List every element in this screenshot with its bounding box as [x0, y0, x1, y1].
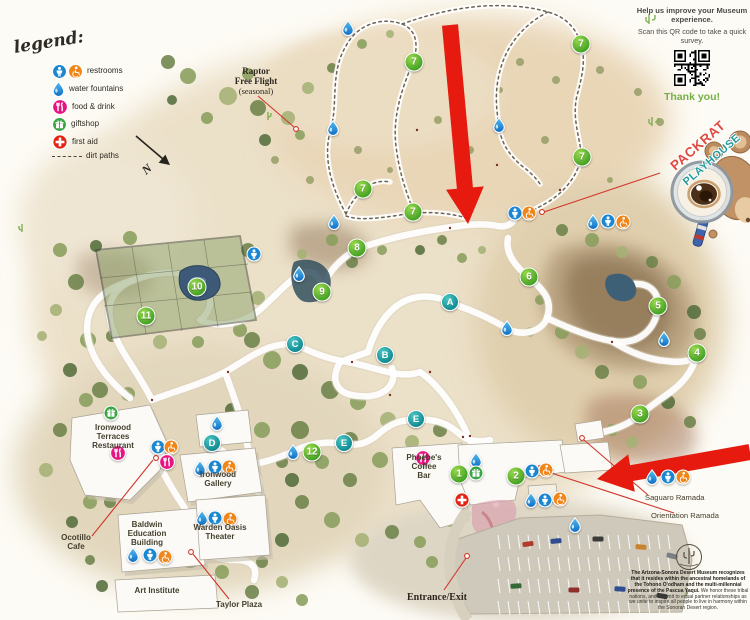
land-acknowledgment: The Arizona-Sonora Desert Museum recogni…: [627, 571, 749, 612]
water-fountain-icon: [587, 214, 600, 230]
water-fountain-icon: [525, 492, 538, 508]
giftshop-icon: [52, 117, 67, 132]
accessible-icon: [522, 206, 537, 221]
legend-item-dirt: dirt paths: [52, 152, 144, 160]
map-label-warden-oasis: Warden Oasis Theater: [193, 524, 246, 542]
marker-number-7: 7: [572, 35, 591, 54]
water-fountain-icon: [327, 120, 340, 136]
restroom-icon: [508, 206, 523, 221]
dirt-path-sample: [52, 156, 82, 157]
marker-number-4: 4: [688, 344, 707, 363]
map-label-orientation-ramada: Orientation Ramada: [651, 512, 719, 521]
map-label-raptor: Raptor Free Flight: [235, 66, 278, 86]
legend-label: water fountains: [69, 85, 123, 93]
giftshop-icon: [104, 406, 119, 421]
marker-letter-D: D: [203, 434, 221, 452]
marker-letter-E: E: [335, 434, 353, 452]
marker-number-5: 5: [649, 297, 668, 316]
water-fountain-icon: [658, 331, 671, 347]
water-fountain-icon: [493, 117, 506, 133]
water-fountain-icon: [52, 81, 65, 97]
water-fountain-icon: [328, 214, 341, 230]
accessible-icon: [616, 215, 631, 230]
water-fountain-icon: [646, 469, 659, 485]
marker-number-1: 1: [450, 465, 469, 484]
legend-item-gift: giftshop: [52, 117, 144, 132]
accessible-icon: [164, 440, 179, 455]
marker-number-7: 7: [354, 180, 373, 199]
water-fountain-icon: [501, 320, 514, 336]
marker-letter-E: E: [407, 410, 425, 428]
museum-map: N: [0, 0, 750, 620]
water-fountain-icon: [293, 266, 306, 282]
map-label-saguaro-ramada: Saguaro Ramada: [645, 494, 705, 503]
marker-number-11: 11: [137, 307, 156, 326]
restroom-icon: [538, 493, 553, 508]
water-fountain-icon: [287, 444, 300, 460]
survey-body: Scan this QR code to take a quick survey…: [636, 27, 748, 45]
accessible-icon: [539, 463, 554, 478]
restroom-icon: [661, 470, 676, 485]
marker-number-3: 3: [631, 405, 650, 424]
food-drink-icon: [159, 454, 175, 470]
legend-label: giftshop: [71, 120, 99, 128]
water-fountain-icon: [211, 415, 224, 431]
legend-label: dirt paths: [86, 152, 119, 160]
marker-number-9: 9: [313, 283, 332, 302]
food-drink-icon: [52, 99, 68, 115]
marker-number-7: 7: [404, 203, 423, 222]
first-aid-icon: [454, 492, 470, 508]
marker-number-2: 2: [507, 467, 526, 486]
water-fountain-icon: [342, 20, 355, 36]
map-label-entrance-exit: Entrance/Exit: [407, 592, 467, 603]
restroom-icon: [601, 214, 616, 229]
map-label-phoebes-coffee-bar: Phoebe's Coffee Bar: [406, 454, 441, 481]
map-label-raptor-seasonal: (seasonal): [239, 87, 273, 97]
legend: legend: restroomswater fountainsfood & d…: [14, 38, 144, 162]
marker-letter-C: C: [286, 335, 304, 353]
giftshop-icon: [469, 466, 484, 481]
legend-item-restrooms: restrooms: [52, 64, 144, 79]
restroom-icon: [247, 247, 262, 262]
legend-label: first aid: [72, 138, 98, 146]
legend-label: restrooms: [87, 67, 123, 75]
legend-item-food: food & drink: [52, 99, 144, 115]
marker-letter-A: A: [441, 293, 459, 311]
map-label-art-institute: Art Institute: [135, 587, 180, 596]
accessible-icon: [553, 492, 568, 507]
marker-letter-B: B: [376, 346, 394, 364]
marker-number-8: 8: [348, 239, 367, 258]
restroom-icon: [525, 464, 540, 479]
qr-code: [674, 50, 710, 86]
map-label-taylor-plaza: Taylor Plaza: [216, 601, 262, 610]
first-aid-icon: [52, 134, 68, 150]
water-fountain-icon: [569, 517, 582, 533]
legend-item-firstaid: first aid: [52, 134, 144, 150]
marker-number-12: 12: [303, 443, 322, 462]
map-label-ironwood-terraces: Ironwood Terraces Restaurant: [92, 424, 134, 451]
legend-label: food & drink: [72, 103, 115, 111]
map-label-ironwood-gallery: Ironwood Gallery: [200, 471, 236, 489]
marker-number-7: 7: [405, 53, 424, 72]
map-label-ocotillo-cafe: Ocotillo Cafe: [61, 534, 91, 552]
marker-number-6: 6: [520, 268, 539, 287]
marker-number-7: 7: [573, 148, 592, 167]
restrooms-icon: [52, 64, 83, 79]
water-fountain-icon: [127, 547, 140, 563]
thank-you-text: Thank you!: [636, 91, 748, 103]
survey-heading: Help us improve your Museum experience.: [636, 6, 748, 25]
map-label-baldwin-education: Baldwin Education Building: [128, 521, 167, 548]
marker-number-10: 10: [188, 278, 207, 297]
restroom-icon: [143, 548, 158, 563]
legend-item-water: water fountains: [52, 81, 144, 97]
accessible-icon: [676, 470, 691, 485]
survey-panel: Help us improve your Museum experience. …: [636, 6, 748, 103]
accessible-icon: [158, 550, 173, 565]
